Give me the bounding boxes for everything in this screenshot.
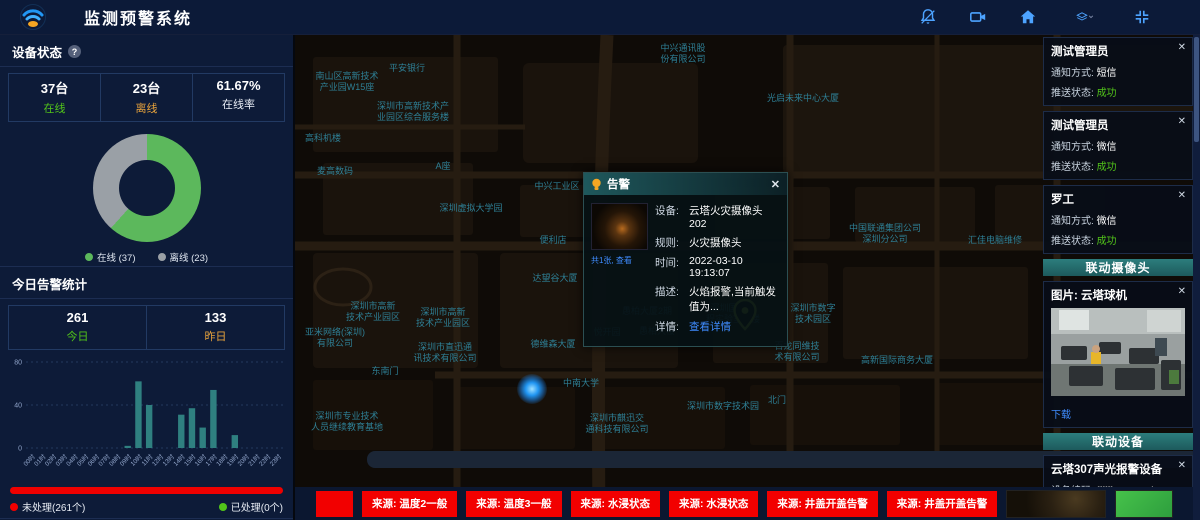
- alert-popup: 告警 ✕ 共1张, 查看 设备:云塔火灾摄像头202规则:火灾摄像头时间:202…: [583, 172, 788, 347]
- alert-field-value: 火灾摄像头: [689, 235, 742, 250]
- popup-close-icon[interactable]: ✕: [771, 178, 780, 191]
- camera-snapshot-card: 图片: 云塔球机✕ 下载: [1043, 281, 1193, 428]
- alert-field-label: 规则:: [655, 235, 689, 250]
- legend-item: 在线 (37): [85, 250, 136, 264]
- svg-text:80: 80: [14, 360, 22, 367]
- help-icon[interactable]: ?: [68, 45, 81, 58]
- card-field-row: 通知方式: 短信: [1051, 64, 1185, 79]
- unprocessed-progress-bar: [10, 487, 283, 494]
- today-stat-cell: 261今日: [9, 306, 146, 349]
- download-link[interactable]: 下载: [1051, 406, 1185, 421]
- map-place-label: 中南大学: [563, 378, 599, 389]
- bar-17时[interactable]: [210, 390, 216, 448]
- map-place-label: 深圳市直迅通 讯技术有限公司: [413, 342, 476, 364]
- video-camera-icon[interactable]: [968, 7, 988, 27]
- right-linkage-panel: 测试管理员✕通知方式: 短信推送状态: 成功测试管理员✕通知方式: 微信推送状态…: [1043, 37, 1193, 520]
- card-field-row: 推送状态: 成功: [1051, 232, 1185, 247]
- today-alerts-header: 今日告警统计: [0, 266, 293, 299]
- camera-snapshot-green[interactable]: [1115, 490, 1173, 518]
- today-alerts-stats: 261今日133昨日: [8, 305, 285, 350]
- map-place-label: 深圳虚拟大学园: [439, 203, 502, 214]
- device-stat-cell: 23台离线: [100, 74, 192, 121]
- legend-label: 未处理(261个): [22, 499, 85, 514]
- card-field-value: 微信: [1097, 216, 1117, 227]
- alert-popup-fields: 设备:云塔火灾摄像头202规则:火灾摄像头时间:2022-03-10 19:13…: [655, 203, 780, 339]
- card-title: 图片: 云塔球机: [1051, 287, 1185, 303]
- card-title: 罗工: [1051, 191, 1185, 207]
- bar-15时[interactable]: [189, 408, 195, 448]
- alert-popup-header[interactable]: 告警 ✕: [584, 173, 787, 195]
- alert-source-chip[interactable]: 来源: 井盖开盖告警: [887, 491, 997, 517]
- card-field-value: 短信: [1097, 68, 1117, 79]
- svg-text:0: 0: [18, 446, 22, 453]
- legend-dot: [85, 253, 93, 261]
- notification-card: 罗工✕通知方式: 微信推送状态: 成功: [1043, 185, 1193, 254]
- map-place-label: 北门: [768, 395, 786, 406]
- legend-label: 已处理(0个): [231, 499, 283, 514]
- stat-label: 昨日: [147, 328, 284, 344]
- card-field-label: 通知方式:: [1051, 216, 1097, 227]
- alert-field-label: 详情:: [655, 319, 689, 334]
- alert-field-value: 火焰报警,当前触发值为...: [689, 284, 780, 314]
- stat-value: 133: [147, 310, 284, 325]
- bar-11时[interactable]: [146, 405, 152, 448]
- alert-source-chip[interactable]: [316, 491, 353, 517]
- stat-value: 261: [9, 310, 146, 325]
- map-place-label: 深圳市麒迅交 通科技有限公司: [585, 413, 648, 435]
- bar-16时[interactable]: [199, 428, 205, 448]
- map-place-label: 麦高数码: [317, 166, 353, 177]
- map-place-label: 深圳市高新技术产 业园区综合服务楼: [377, 101, 449, 123]
- stat-label: 在线率: [193, 96, 284, 112]
- alert-source-chip[interactable]: 来源: 井盖开盖告警: [767, 491, 877, 517]
- svg-text:40: 40: [14, 403, 22, 410]
- fullscreen-exit-icon[interactable]: [1132, 7, 1152, 27]
- legend-dot: [10, 503, 18, 511]
- bottom-alert-ticker: 来源: 温度2一般来源: 温度3一般来源: 水浸状态来源: 水浸状态来源: 井盖…: [295, 487, 1200, 520]
- stat-label: 在线: [9, 100, 100, 116]
- card-field-label: 推送状态:: [1051, 162, 1097, 173]
- device-status-stats: 37台在线23台离线61.67%在线率: [8, 73, 285, 122]
- linked-devices-button[interactable]: 联动设备: [1043, 433, 1193, 450]
- legend-dot: [158, 253, 166, 261]
- map-place-label: 平安银行: [389, 63, 425, 74]
- map-place-label: 东南门: [371, 366, 398, 377]
- camera-snapshot-dark[interactable]: [1006, 490, 1106, 518]
- left-stats-panel: 设备状态 ? 37台在线23台离线61.67%在线率 在线 (37)离线 (23…: [0, 35, 295, 520]
- card-field-value: 成功: [1097, 236, 1117, 247]
- card-field-value: 微信: [1097, 142, 1117, 153]
- fire-alert-thumbnail[interactable]: [591, 203, 648, 250]
- stat-value: 61.67%: [193, 78, 284, 93]
- view-detail-link[interactable]: 查看详情: [689, 319, 731, 334]
- legend-item: 离线 (23): [158, 250, 209, 264]
- card-field-label: 通知方式:: [1051, 142, 1097, 153]
- app-logo-icon: [20, 4, 46, 30]
- process-legend-item: 已处理(0个): [219, 499, 283, 514]
- alert-field-label: 设备:: [655, 203, 689, 230]
- alert-field-row: 规则:火灾摄像头: [655, 235, 780, 250]
- device-status-header: 设备状态 ?: [0, 35, 293, 67]
- map-place-label: 南山区高新技术 产业园W15座: [315, 71, 378, 93]
- device-stat-cell: 37台在线: [9, 74, 100, 121]
- alert-field-value: 2022-03-10 19:13:07: [689, 255, 780, 279]
- card-field-row: 通知方式: 微信: [1051, 138, 1185, 153]
- bell-mute-icon[interactable]: [918, 7, 938, 27]
- map-dot-blue-icon[interactable]: [517, 374, 547, 404]
- legend-label: 离线 (23): [170, 250, 209, 264]
- card-close-icon[interactable]: ✕: [1178, 42, 1186, 53]
- map-place-label: 中兴通讯股 份有限公司: [660, 43, 705, 65]
- alert-source-chip[interactable]: 来源: 水浸状态: [571, 491, 660, 517]
- top-header: 监测预警系统: [0, 0, 1200, 35]
- map-place-label: 亚米网络(深圳) 有限公司: [305, 327, 365, 349]
- map-place-label: 深圳市高新 技术产业园区: [416, 307, 470, 329]
- card-close-icon[interactable]: ✕: [1178, 190, 1186, 201]
- alert-field-label: 时间:: [655, 255, 689, 279]
- scrollbar-thumb[interactable]: [1194, 37, 1199, 142]
- card-field-row: 推送状态: 成功: [1051, 84, 1185, 99]
- alarm-lamp-icon: [591, 178, 602, 191]
- alert-source-chip[interactable]: 来源: 水浸状态: [669, 491, 758, 517]
- alert-field-row: 时间:2022-03-10 19:13:07: [655, 255, 780, 279]
- alert-source-chip[interactable]: 来源: 温度2一般: [362, 491, 457, 517]
- alert-source-chip[interactable]: 来源: 温度3一般: [466, 491, 561, 517]
- map-place-label: 便利店: [539, 235, 566, 246]
- alert-field-row: 设备:云塔火灾摄像头202: [655, 203, 780, 230]
- bar-19时[interactable]: [232, 435, 238, 448]
- map-place-label: 德维森大厦: [530, 339, 575, 350]
- alert-field-row: 详情:查看详情: [655, 319, 780, 334]
- bar-10时[interactable]: [135, 381, 141, 448]
- map-place-label: 深圳市高新 技术产业园区: [346, 301, 400, 323]
- linked-cameras-button[interactable]: 联动摄像头: [1043, 259, 1193, 276]
- layers-icon[interactable]: [1068, 7, 1102, 27]
- stat-label: 今日: [9, 328, 146, 344]
- map-place-label: 高新国际商务大厦: [861, 355, 933, 366]
- map-place-label: 光启未来中心大厦: [767, 93, 839, 104]
- device-status-donut-chart: [93, 134, 201, 242]
- donut-legend: 在线 (37)离线 (23): [85, 250, 208, 264]
- alert-field-label: 描述:: [655, 284, 689, 314]
- page-title: 监测预警系统: [84, 5, 192, 29]
- legend-label: 在线 (37): [97, 250, 136, 264]
- process-legend-item: 未处理(261个): [10, 499, 85, 514]
- stat-value: 23台: [101, 78, 192, 97]
- chevron-down-icon: [1089, 16, 1093, 18]
- legend-dot: [219, 503, 227, 511]
- hourly-alert-bar-chart: 0408000时01时02时03时04时05时06时07时08时09时10时11…: [6, 356, 287, 478]
- map-place-label: 深圳市数字 技术园区: [790, 303, 835, 325]
- stat-value: 37台: [9, 78, 100, 97]
- card-title: 测试管理员: [1051, 43, 1185, 59]
- process-legend: 未处理(261个)已处理(0个): [0, 494, 293, 519]
- map-place-label: 深圳市数字技术园: [687, 401, 759, 412]
- card-field-value: 成功: [1097, 162, 1117, 173]
- stat-label: 离线: [101, 100, 192, 116]
- map-place-label: 汇佳电脑维修: [968, 235, 1022, 246]
- alert-field-value: 云塔火灾摄像头202: [689, 203, 780, 230]
- map-place-label: 中国联通集团公司 深圳分公司: [849, 223, 921, 245]
- card-field-value: 成功: [1097, 88, 1117, 99]
- camera-snapshot-image[interactable]: [1051, 308, 1185, 396]
- device-status-title: 设备状态: [12, 42, 62, 61]
- card-field-row: 推送状态: 成功: [1051, 158, 1185, 173]
- card-title: 测试管理员: [1051, 117, 1185, 133]
- thumbnail-caption-link[interactable]: 共1张, 查看: [591, 255, 648, 266]
- card-close-icon[interactable]: ✕: [1178, 116, 1186, 127]
- card-close-icon[interactable]: ✕: [1178, 286, 1186, 297]
- map-place-label: 达望谷大厦: [532, 273, 577, 284]
- today-alerts-title: 今日告警统计: [12, 274, 87, 293]
- home-icon[interactable]: [1018, 7, 1038, 27]
- card-title: 云塔307声光报警设备: [1051, 461, 1185, 477]
- notification-card: 测试管理员✕通知方式: 微信推送状态: 成功: [1043, 111, 1193, 180]
- device-stat-cell: 61.67%在线率: [192, 74, 284, 121]
- card-field-label: 推送状态:: [1051, 88, 1097, 99]
- map-place-label: 中兴工业区: [534, 181, 579, 192]
- card-field-row: 通知方式: 微信: [1051, 212, 1185, 227]
- map-place-label: A座: [435, 161, 450, 172]
- card-field-label: 推送状态:: [1051, 236, 1097, 247]
- bar-09时[interactable]: [125, 446, 131, 448]
- alert-popup-title: 告警: [607, 176, 630, 192]
- card-close-icon[interactable]: ✕: [1178, 460, 1186, 471]
- alert-field-row: 描述:火焰报警,当前触发值为...: [655, 284, 780, 314]
- card-field-label: 通知方式:: [1051, 68, 1097, 79]
- notification-card: 测试管理员✕通知方式: 短信推送状态: 成功: [1043, 37, 1193, 106]
- bar-14时[interactable]: [178, 415, 184, 448]
- map-place-label: 高科机楼: [305, 133, 341, 144]
- right-scrollbar[interactable]: [1193, 35, 1200, 520]
- today-stat-cell: 133昨日: [146, 306, 284, 349]
- map-place-label: 深圳市专业技术 人员继续教育基地: [311, 411, 383, 433]
